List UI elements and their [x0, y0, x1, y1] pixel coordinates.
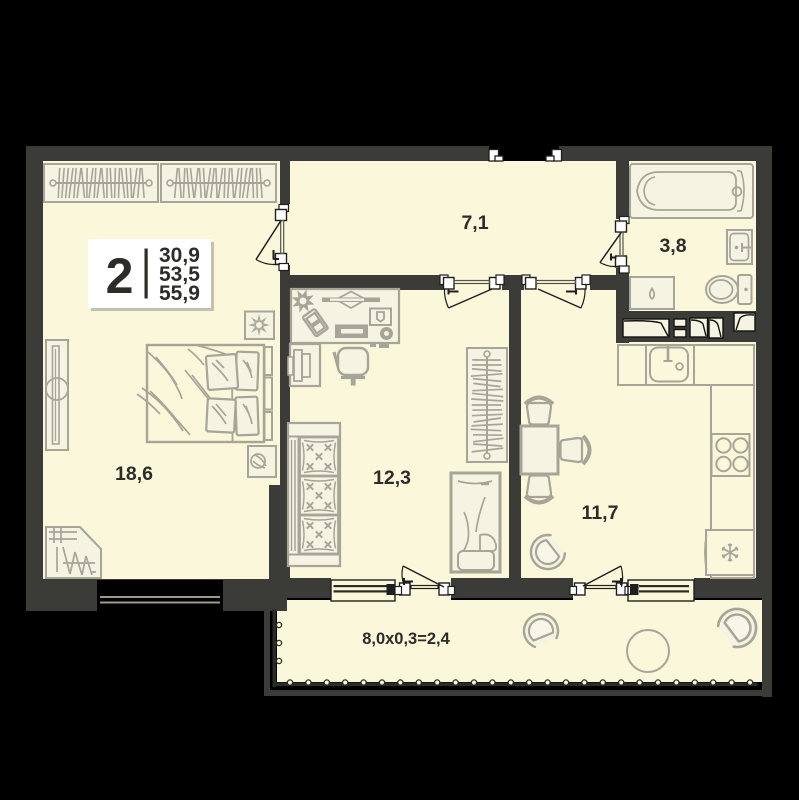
- svg-text:12,3: 12,3: [373, 467, 411, 489]
- svg-text:7,1: 7,1: [461, 212, 488, 234]
- svg-text:55,9: 55,9: [159, 282, 200, 305]
- svg-text:11,7: 11,7: [582, 502, 619, 524]
- svg-text:8,0x0,3=2,4: 8,0x0,3=2,4: [362, 630, 450, 648]
- svg-text:18,6: 18,6: [115, 463, 153, 485]
- svg-text:2: 2: [106, 248, 133, 304]
- svg-text:3,8: 3,8: [659, 235, 686, 257]
